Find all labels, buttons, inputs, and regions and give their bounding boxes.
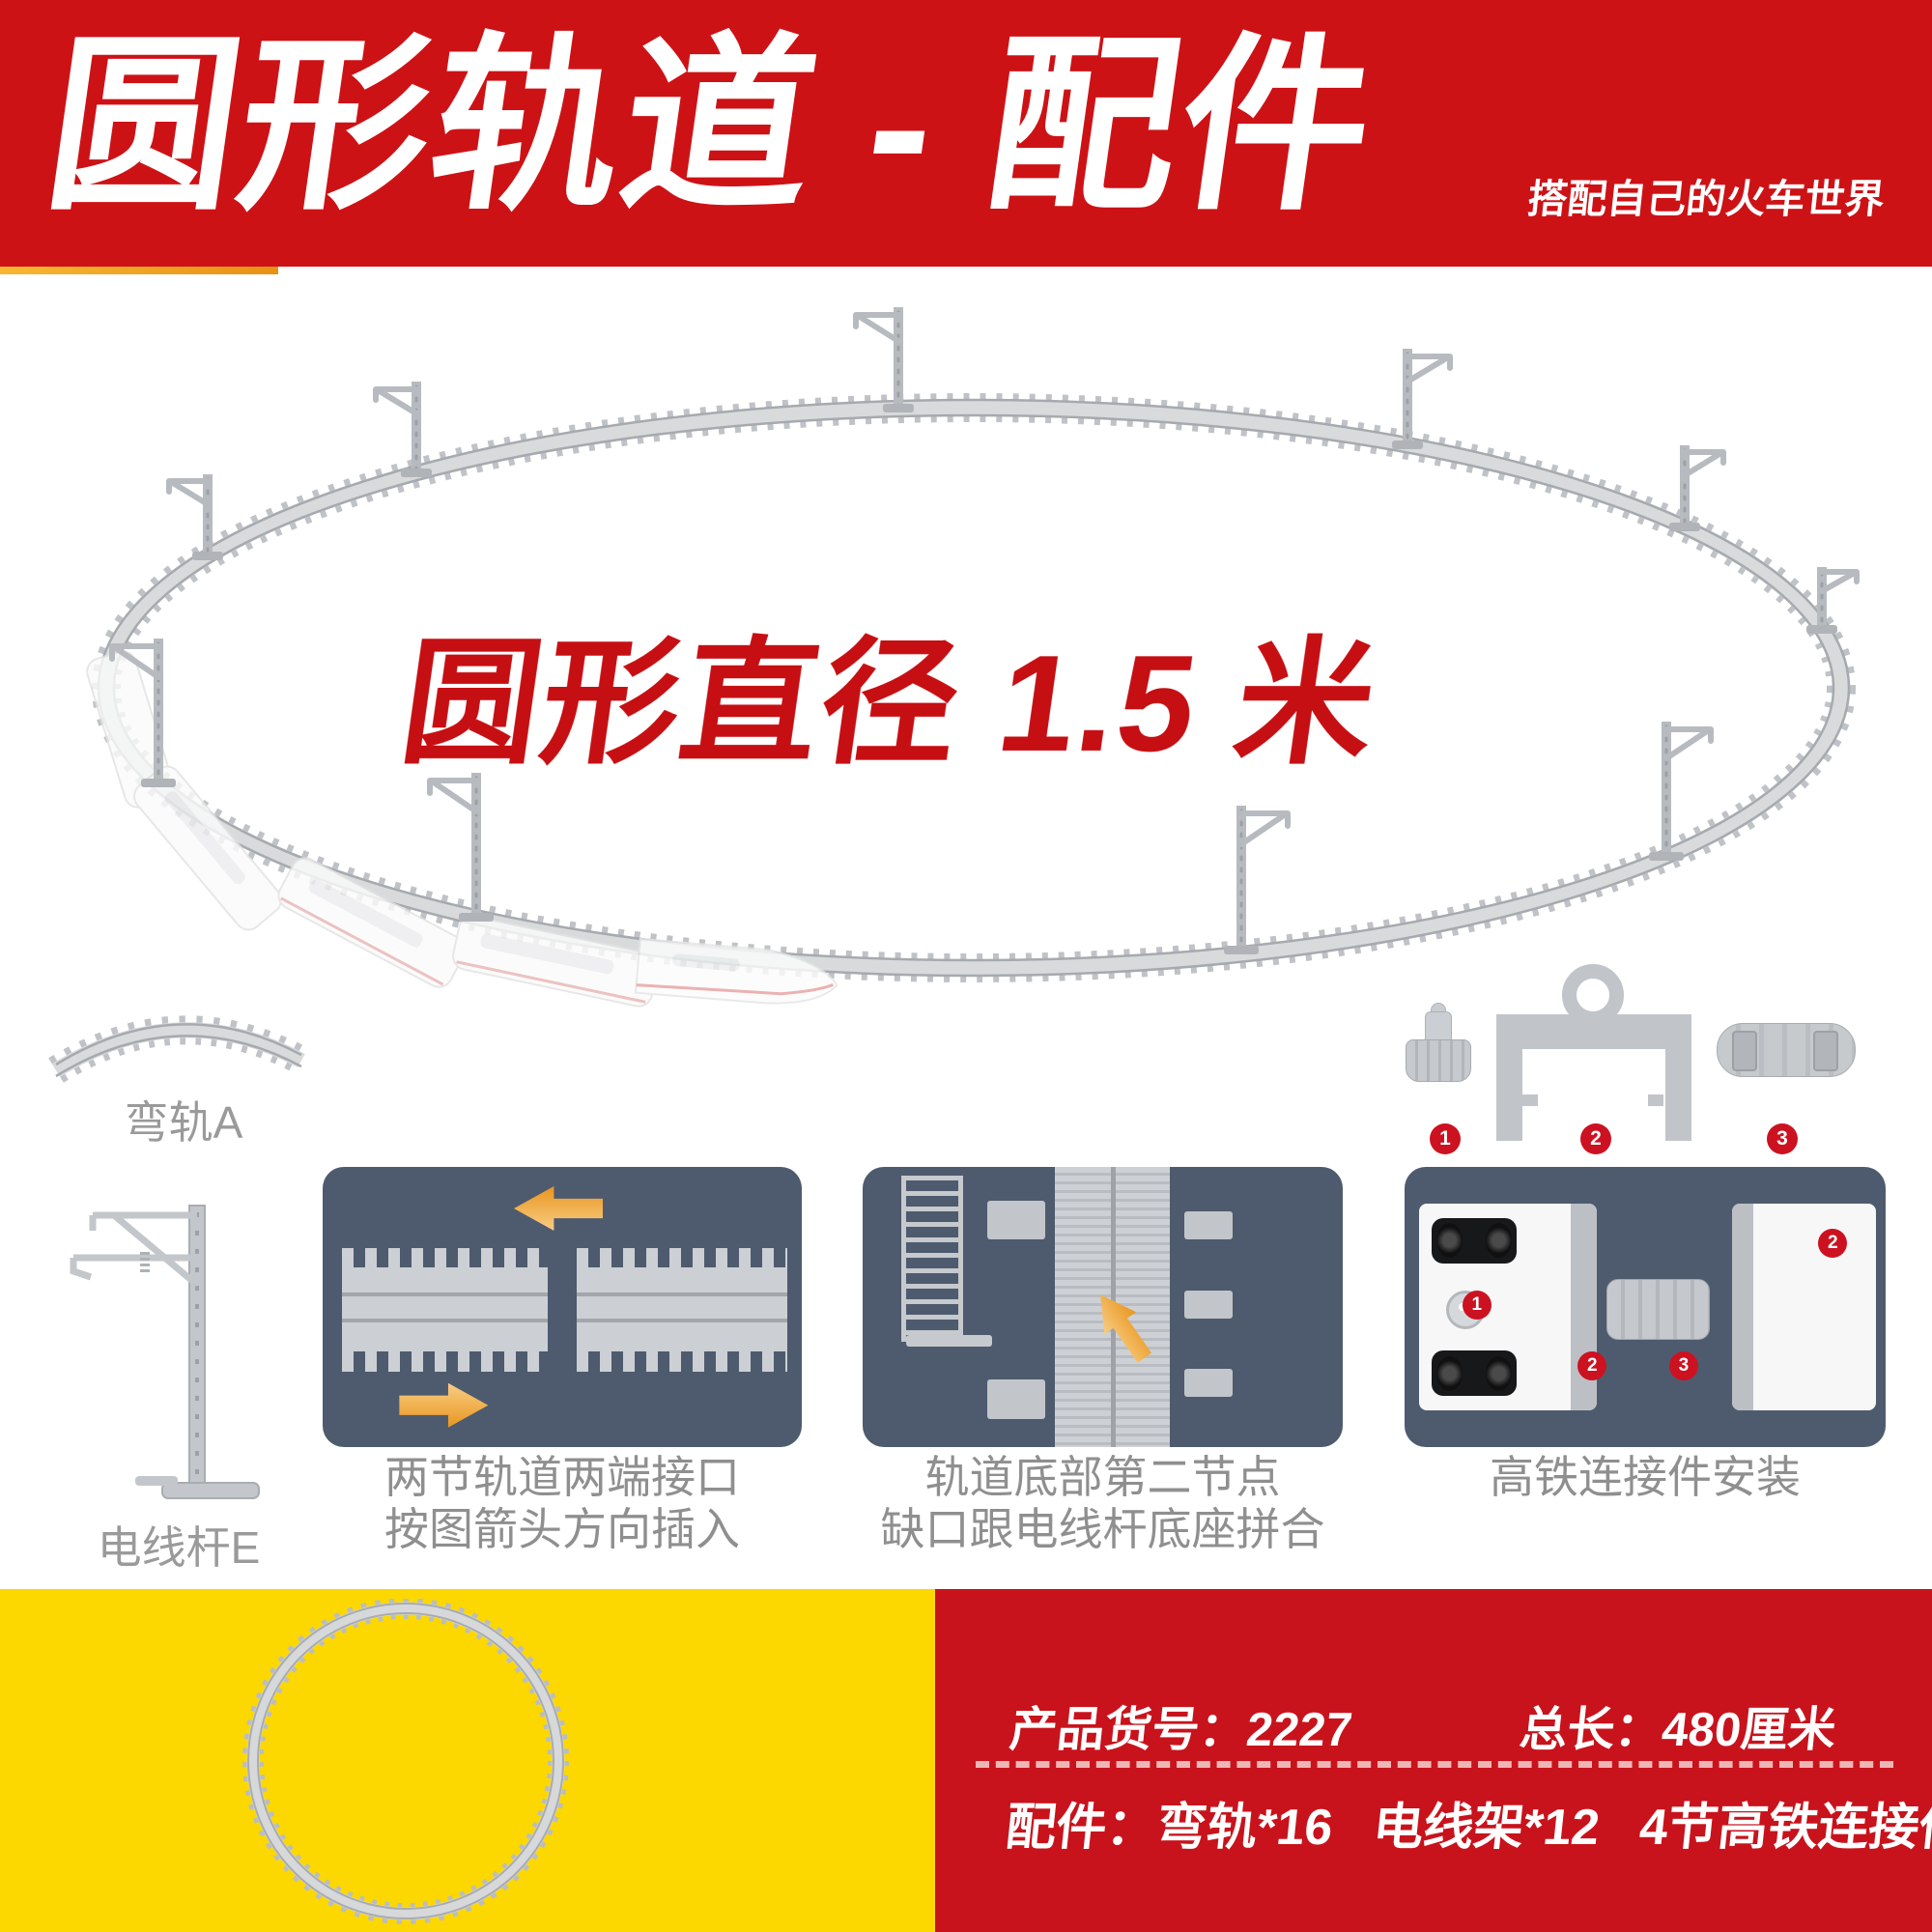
bracket-foot [1522, 1094, 1538, 1106]
sku-value: 2227 [1244, 1704, 1355, 1756]
caption-line: 按图箭头方向插入 [323, 1503, 802, 1555]
coupler-bar [1606, 1279, 1710, 1340]
accessory-item: 弯轨*16 [1153, 1800, 1335, 1856]
car-underside-right [1732, 1204, 1876, 1411]
install-badge-2: 2 [1818, 1229, 1847, 1258]
car-underside-left [1419, 1204, 1597, 1411]
install-badge-3: 3 [1669, 1351, 1698, 1380]
connector-part-bracket [1496, 964, 1690, 1106]
banner-tagline: 搭配自己的火车世界 [1525, 166, 1888, 224]
caption-pole-mounting: 轨道底部第二节点 缺口跟电线杆底座拼合 [863, 1451, 1343, 1555]
coupler-clip [1813, 1031, 1838, 1071]
accessory-item: 电线架*12 [1370, 1800, 1602, 1856]
track-piece-left [342, 1267, 548, 1351]
coupler-socket [1732, 1204, 1753, 1411]
bracket-body [1496, 1014, 1691, 1141]
arrow-right-icon [399, 1383, 488, 1428]
caption-line: 缺口跟电线杆底座拼合 [863, 1503, 1343, 1555]
connector-part-coupler [1717, 1019, 1854, 1079]
sku-label: 产品货号： [1008, 1704, 1250, 1756]
caption-line: 高铁连接件安装 [1405, 1451, 1886, 1503]
length-value: 480厘米 [1660, 1704, 1838, 1756]
panel-connector-install: 1 2 2 3 [1405, 1167, 1886, 1447]
footer-red-block: 产品货号：2227 总长：480厘米 配件：弯轨*16电线架*124节高铁连接件 [935, 1589, 1932, 1932]
curved-track-label: 弯轨A [58, 1088, 309, 1151]
track-tab [1184, 1211, 1233, 1239]
coupler-clip [1732, 1031, 1757, 1071]
track-tab [1184, 1369, 1233, 1397]
accessories-line: 配件：弯轨*16电线架*124节高铁连接件 [1003, 1786, 1932, 1859]
caption-line: 轨道底部第二节点 [863, 1451, 1343, 1503]
wheelset [1432, 1218, 1517, 1264]
arrow-left-icon [514, 1186, 603, 1231]
banner-gold-strip [0, 267, 278, 274]
caption-line: 两节轨道两端接口 [323, 1451, 802, 1503]
bracket-foot [1648, 1094, 1663, 1106]
track-tab [987, 1379, 1045, 1419]
footer-yellow-block [0, 1589, 935, 1932]
part-badge-1: 1 [1430, 1123, 1461, 1154]
pole-foot [906, 1335, 992, 1347]
accessories-label: 配件： [1003, 1800, 1159, 1856]
caption-track-joining: 两节轨道两端接口 按图箭头方向插入 [323, 1451, 802, 1555]
curved-track-icon [56, 1024, 301, 1076]
power-pole-icon [73, 1206, 259, 1498]
banner-title: 圆形轨道 - 配件 [34, 8, 1389, 244]
track-tab [1184, 1291, 1233, 1319]
length-label: 总长： [1518, 1704, 1665, 1756]
install-badge-2: 2 [1577, 1351, 1606, 1380]
diameter-headline: 圆形直径 1.5 米 [392, 591, 1541, 790]
track-ring-icon [155, 1599, 696, 1927]
pole-ladder [901, 1176, 964, 1342]
part-badge-2: 2 [1580, 1123, 1611, 1154]
power-pole-label: 电线杆E [34, 1513, 324, 1577]
panel-track-joining [323, 1167, 802, 1447]
dashed-divider [976, 1761, 1893, 1768]
accessory-item: 4节高铁连接件 [1637, 1800, 1932, 1856]
caption-connector-install: 高铁连接件安装 [1405, 1451, 1886, 1503]
length-line: 总长：480厘米 [1517, 1691, 1839, 1760]
part-badge-3: 3 [1767, 1123, 1798, 1154]
sku-line: 产品货号：2227 [1007, 1691, 1355, 1760]
top-banner: 圆形轨道 - 配件 搭配自己的火车世界 [0, 0, 1932, 267]
install-badge-1: 1 [1463, 1291, 1492, 1320]
peg-head [1406, 1039, 1471, 1082]
connector-part-peg [1406, 1003, 1469, 1080]
wheelset [1432, 1350, 1517, 1396]
panel-pole-mounting [863, 1167, 1343, 1447]
product-poster: 圆形轨道 - 配件 搭配自己的火车世界 [0, 0, 1932, 1932]
track-piece-right [577, 1267, 787, 1351]
track-tab [987, 1201, 1045, 1240]
